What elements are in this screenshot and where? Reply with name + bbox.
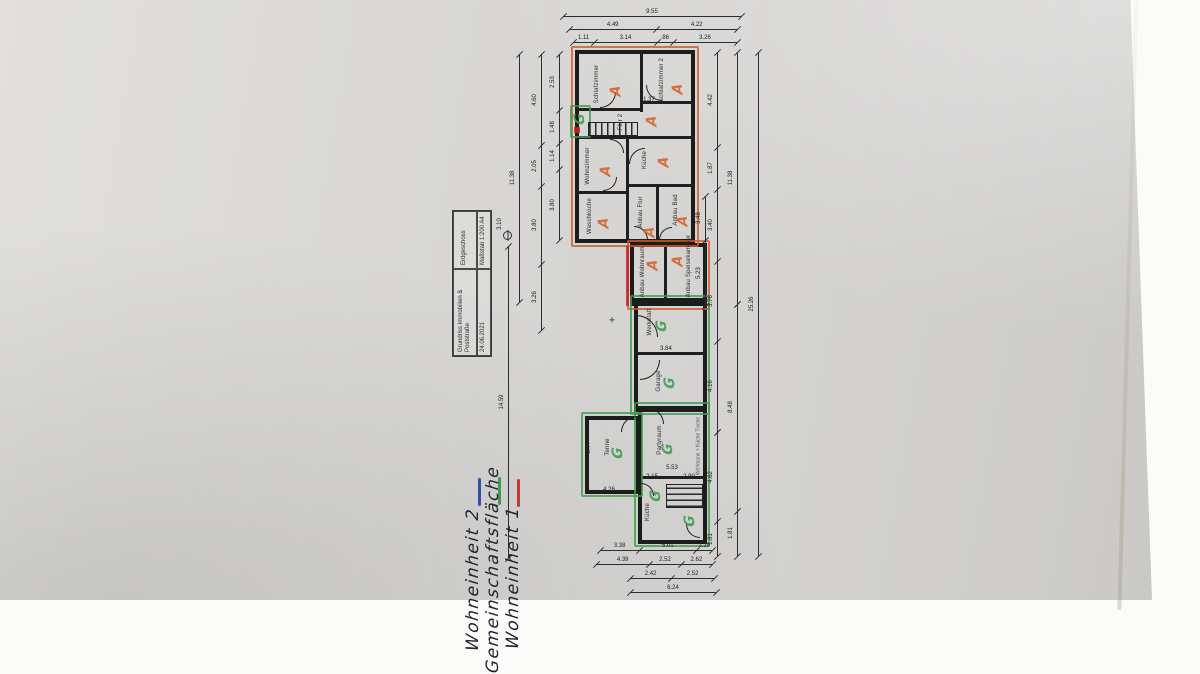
dimension-tick [755,553,762,560]
dimension-value: 2.90 [683,474,695,480]
dimension-value: 1.11 [578,35,589,41]
dimension-tick [714,553,721,560]
dimension-value: 4.60 [532,94,538,106]
dimension-line [705,196,706,306]
legend-line-blue [478,478,481,506]
dimension-tick [734,39,741,46]
unit-mark-g: G [660,443,675,455]
unit-boundary-mark [626,246,629,306]
dimension-value: 2.52 [659,557,671,563]
unit-mark-a: A [644,115,659,127]
room-label: Anbau Flur [638,196,644,227]
stairs-hatch [666,484,703,508]
dimension-tick [711,575,718,582]
dimension-tick [556,237,563,244]
room-label: Wohnzimmer [585,147,591,184]
dimension-tick [734,26,741,33]
title-block: Grundriss Immobilien & Poststraße Erdges… [452,210,492,357]
unit-mark-g: G [648,490,663,502]
circle-cross-icon [503,231,512,240]
register-cross-icon: + [609,316,615,327]
dimension-value: 2.62 [690,557,702,563]
dimension-line [569,29,737,30]
dimension-value: 4.26 [603,487,615,493]
dimension-value: 3.26 [532,291,538,303]
wall-annotation: Werkbank + Küche Tische [697,417,702,475]
dimension-line [717,432,718,556]
dimension-value: 11.38 [510,171,516,186]
dimension-value: 1.87 [708,162,714,174]
unit-mark-a: A [645,259,660,271]
dimension-value: 2.15 [646,474,658,480]
dimension-value: 1.37 [643,97,655,103]
stairs-hatch [588,122,638,136]
room-label: Küche [642,151,648,169]
room-label: Schlafzimmer 2 [659,58,665,102]
dimension-tick [738,13,745,20]
unit-mark-g: G [662,377,677,389]
legend-label-unit1: Wohneinheit 1 [503,505,523,650]
unit-boundary-mark [574,127,580,133]
dimension-line [596,564,712,565]
dimension-line [758,52,759,556]
dimension-value: 9.55 [646,9,658,15]
photo-of-floor-plan: { "document": { "type": "floor-plan-phot… [0,0,1200,600]
dimension-value: 3.84 [660,346,672,352]
dimension-tick [709,561,716,568]
dimension-value: 3.40 [708,219,714,231]
dimension-value: 4.39 [617,557,629,563]
title-block-date-cell: 24.06.2021 [477,269,491,356]
dimension-value: 1.29 [698,543,710,549]
room-label: Küche [645,503,651,521]
dimension-value: 3.48 [696,212,702,224]
dimension-value: 4.49 [607,22,619,28]
dimension-value: 3.14 [620,35,632,41]
unit-mark-a: A [608,85,623,97]
unit-mark-a: A [598,165,613,177]
floor-label: Erdgeschoss [461,230,468,265]
dimension-value: 8.48 [728,401,734,413]
room-label: Werkstatt [647,308,653,335]
legend-line-red [517,479,520,507]
dimension-line [717,52,718,432]
room-label: Schlafzimmer [594,65,600,104]
dimension-value: 1.14 [550,150,556,162]
dimension-tick [516,299,523,306]
dimension-value: 4.62 [708,471,714,483]
dimension-value: 1.81 [728,527,734,539]
title-block-scale-cell: Maßstab 1:200 A4 [477,211,491,269]
dimension-value: 3.10 [497,218,503,230]
dimension-line [519,54,520,302]
unit-mark-g: G [572,113,587,125]
dimension-tick [734,553,741,560]
unit-mark-g: G [682,515,697,527]
dimension-value: 14.59 [499,394,505,409]
dimension-value: 3.38 [614,543,626,549]
scale-label: Maßstab 1:200 A4 [480,215,487,265]
dimension-value: 11.38 [728,171,734,186]
dimension-value: 2.52 [687,571,699,577]
unit-mark-a: A [670,255,685,267]
dimension-value: 2.42 [645,571,657,577]
title-block-table: Grundriss Immobilien & Poststraße Erdges… [452,210,492,357]
legend-label-common: Gemeinschaftsfläche [483,465,503,674]
dimension-line [563,16,741,17]
unit-mark-a: A [596,217,611,229]
unit-outline [630,295,710,415]
dimension-line [559,54,560,240]
dimension-value: 4.16 [708,381,714,393]
room-label: Anbau Wohnraum [640,246,646,297]
legend-label-unit2: Wohneinheit 2 [463,507,483,652]
dimension-value: 2.05 [532,160,538,172]
dimension-value: 25.26 [749,296,755,311]
date-label: 24.06.2021 [480,273,487,352]
dimension-value: 1.48 [550,121,556,133]
room-label: Anbau Speisekammer [686,235,692,298]
dimension-line [737,304,738,556]
unit-mark-g: G [610,447,625,459]
unit-mark-a: A [656,156,671,168]
company-line2: Poststraße [465,273,472,352]
room-label: Waschküche [587,198,593,234]
dimension-value: 6.44 [586,442,592,454]
title-block-floor-cell: Erdgeschoss [453,211,477,269]
company-line1: Grundriss Immobilien & [458,273,465,352]
unit-mark-g: G [654,320,669,332]
unit-mark-a: A [670,83,685,95]
dimension-value: 3.26 [699,35,711,41]
title-block-company-cell: Grundriss Immobilien & Poststraße [453,269,477,356]
dimension-value: 5.01 [662,543,674,549]
dimension-line [737,52,738,304]
dimension-tick [713,589,720,596]
unit-mark-a: A [675,215,690,227]
dimension-value: .86 [661,35,669,41]
dimension-value: 5.23 [696,267,702,279]
dimension-value: 3.76 [708,295,714,307]
dimension-value: 4.42 [708,94,714,106]
dimension-value: 3.80 [550,199,556,211]
dimension-value: 4.22 [691,22,703,28]
dimension-value: 3.80 [532,219,538,231]
dimension-value: 6.24 [667,585,679,591]
room-label: Flur 2 [618,114,624,131]
dimension-line [541,54,542,330]
unit-mark-a: A [642,226,657,238]
dimension-line [630,592,716,593]
dimension-tick [538,327,545,334]
dimension-value: 5.53 [666,465,678,471]
dimension-value: 2.53 [550,76,556,88]
floor-plan-drawing: SchlafzimmerSchlafzimmer 2Flur 2Wohnzimm… [0,0,1200,600]
